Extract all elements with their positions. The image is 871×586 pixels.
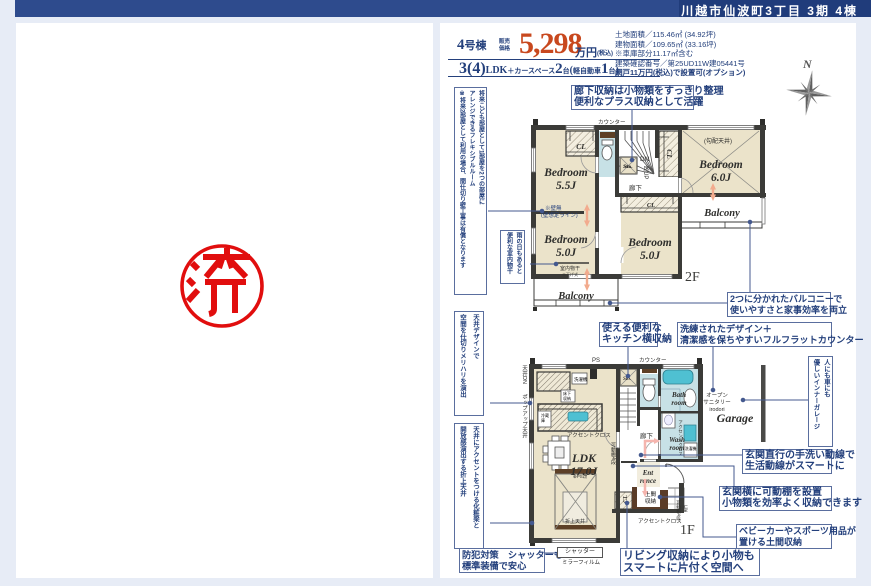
svg-text:CL: CL [576, 142, 586, 151]
svg-text:Balcony: Balcony [557, 291, 594, 302]
svg-text:Bedroom: Bedroom [543, 234, 588, 246]
svg-text:Ent: Ent [642, 469, 655, 477]
svg-text:可動棚4段: 可動棚4段 [676, 500, 682, 522]
svg-text:オープン: オープン [706, 392, 728, 399]
svg-text:洗濯機: 洗濯機 [685, 446, 697, 451]
svg-text:※壁無: ※壁無 [545, 204, 562, 212]
svg-text:室内物干: 室内物干 [560, 265, 580, 272]
svg-text:6.0J: 6.0J [711, 172, 732, 184]
svg-text:可動棚4段: 可動棚4段 [610, 442, 616, 466]
svg-text:サニタリー: サニタリー [703, 398, 731, 406]
svg-text:カウンター: カウンター [598, 118, 626, 126]
svg-text:Bath: Bath [671, 391, 686, 399]
svg-text:Balcony: Balcony [703, 208, 740, 219]
svg-text:庫: 庫 [541, 417, 545, 423]
svg-text:PS: PS [592, 358, 600, 364]
svg-text:折上天井: 折上天井 [565, 518, 585, 525]
svg-text:LDK: LDK [571, 451, 597, 465]
svg-text:rance: rance [640, 477, 656, 485]
svg-text:DN: DN [640, 156, 650, 163]
svg-text:Sto.: Sto. [623, 164, 633, 170]
svg-text:irodori: irodori [709, 407, 724, 413]
svg-text:Bedroom: Bedroom [698, 159, 743, 171]
svg-text:アクセントクロス: アクセントクロス [678, 420, 684, 457]
svg-text:廊下: 廊下 [629, 183, 643, 192]
svg-text:アクセントクロス: アクセントクロス [567, 432, 611, 439]
svg-text:CL: CL [665, 149, 674, 159]
svg-text:洗濯機: 洗濯機 [574, 376, 588, 383]
svg-text:⊕PS改: ⊕PS改 [573, 473, 588, 480]
svg-text:Bedroom: Bedroom [627, 237, 672, 249]
svg-text:1F: 1F [680, 523, 695, 538]
svg-text:Bedroom: Bedroom [543, 167, 588, 179]
svg-text:Garage: Garage [717, 411, 754, 425]
svg-text:収納: 収納 [563, 395, 571, 401]
svg-text:カウンター: カウンター [639, 356, 667, 364]
svg-text:(壁想定ライン): (壁想定ライン) [541, 211, 578, 219]
svg-text:(勾配天井): (勾配天井) [704, 137, 732, 145]
svg-text:※下げ式: ※下げ式 [562, 271, 578, 277]
svg-text:5.0J: 5.0J [556, 247, 577, 259]
svg-text:L型: L型 [683, 505, 689, 512]
svg-text:アクセントクロス: アクセントクロス [638, 518, 682, 525]
svg-text:2F: 2F [685, 270, 700, 285]
svg-text:床UP: 床UP [642, 164, 649, 179]
svg-text:廊下: 廊下 [640, 431, 654, 440]
svg-text:room: room [671, 399, 687, 407]
svg-text:5.5J: 5.5J [556, 180, 577, 192]
svg-text:CL: CL [647, 202, 655, 209]
svg-text:収納: 収納 [645, 497, 657, 505]
svg-text:5.0J: 5.0J [640, 250, 661, 262]
